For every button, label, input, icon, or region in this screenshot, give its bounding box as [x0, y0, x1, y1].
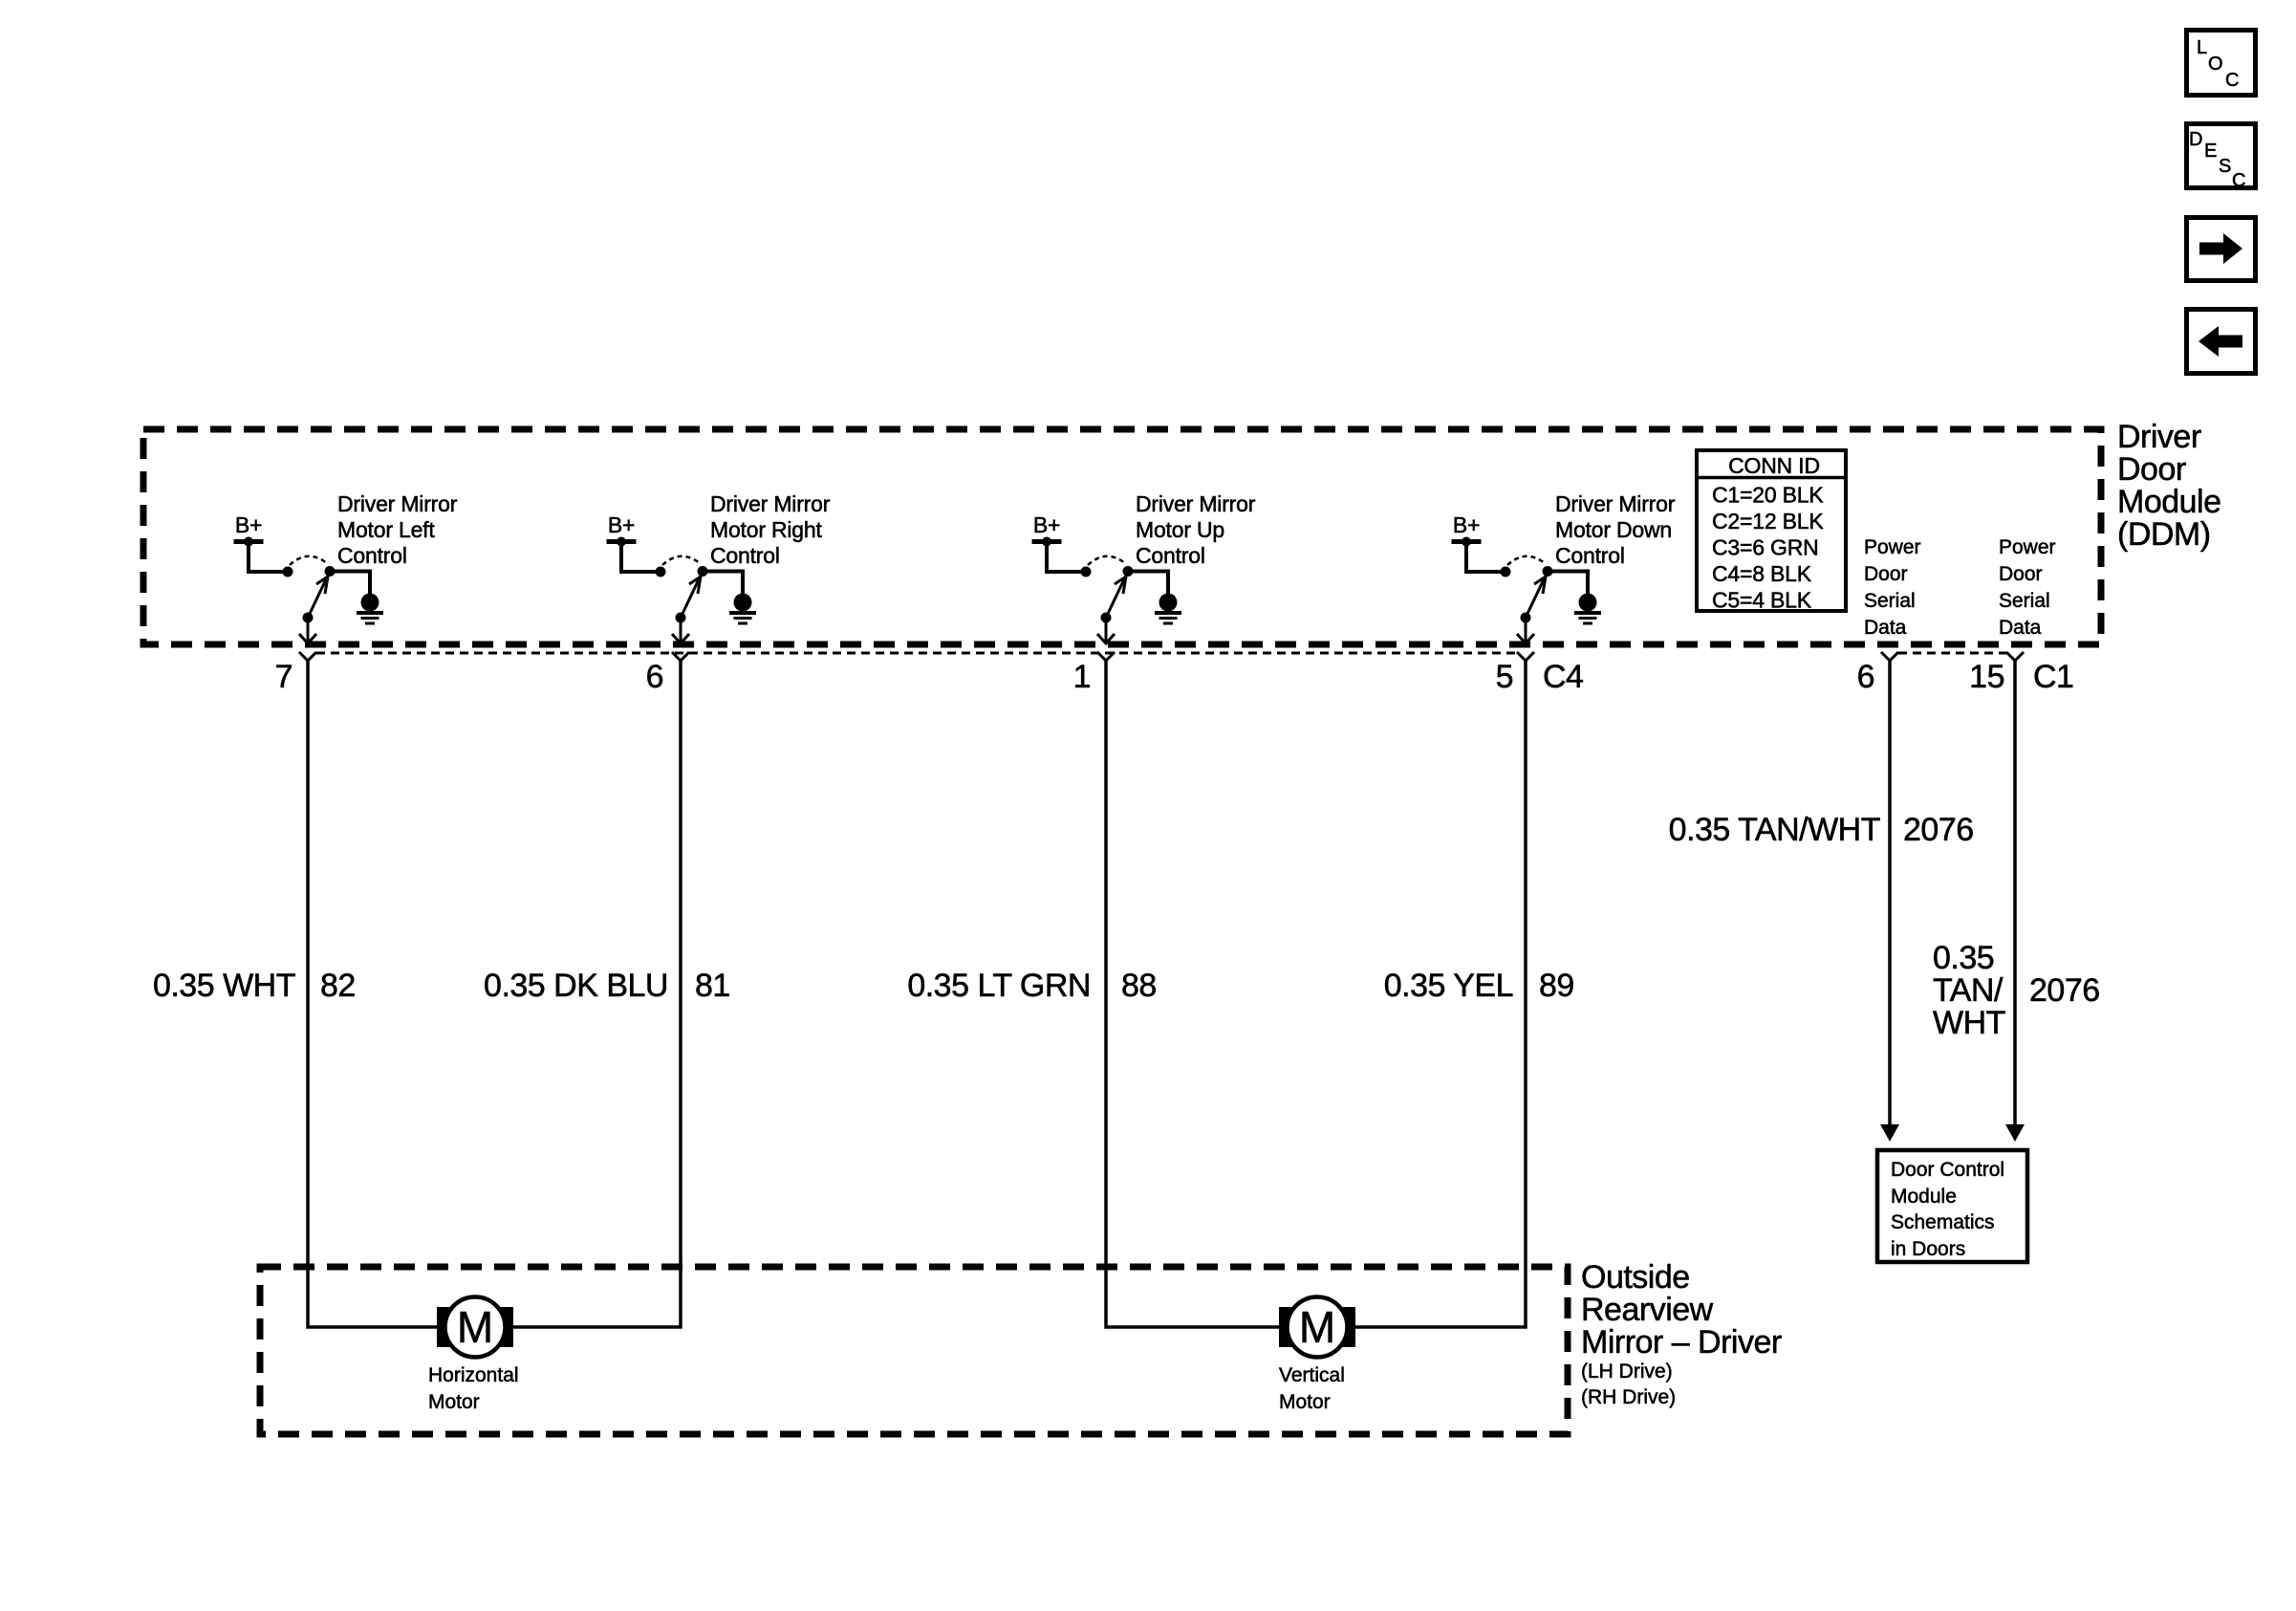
- svg-text:7: 7: [275, 659, 292, 695]
- svg-text:81: 81: [695, 968, 730, 1004]
- svg-text:B+: B+: [608, 512, 635, 537]
- svg-text:Horizontal: Horizontal: [428, 1364, 519, 1386]
- svg-text:89: 89: [1539, 968, 1574, 1004]
- svg-text:Power: Power: [1999, 536, 2056, 558]
- svg-text:B+: B+: [1453, 512, 1480, 537]
- svg-text:Data: Data: [1999, 617, 2042, 639]
- svg-text:5: 5: [1496, 659, 1513, 695]
- svg-text:C: C: [2225, 70, 2239, 91]
- svg-text:Driver: Driver: [2117, 419, 2201, 455]
- svg-text:0.35 YEL: 0.35 YEL: [1384, 968, 1513, 1004]
- svg-text:M: M: [1299, 1302, 1335, 1352]
- svg-text:C: C: [2232, 170, 2245, 191]
- svg-text:Control: Control: [337, 543, 407, 568]
- svg-text:6: 6: [1857, 659, 1874, 695]
- svg-text:Serial: Serial: [1999, 590, 2050, 612]
- svg-text:Motor Right: Motor Right: [710, 517, 822, 542]
- svg-text:C2=12 BLK: C2=12 BLK: [1712, 509, 1824, 533]
- svg-text:Serial: Serial: [1864, 590, 1916, 612]
- svg-text:Driver Mirror: Driver Mirror: [1136, 491, 1256, 516]
- svg-text:Control: Control: [710, 543, 780, 568]
- svg-text:Motor Left: Motor Left: [337, 517, 435, 542]
- svg-text:2076: 2076: [1903, 812, 1974, 848]
- svg-text:(LH Drive): (LH Drive): [1581, 1361, 1673, 1382]
- svg-text:2076: 2076: [2029, 972, 2100, 1009]
- svg-text:O: O: [2208, 54, 2223, 75]
- svg-text:0.35 TAN/WHT: 0.35 TAN/WHT: [1669, 812, 1880, 848]
- svg-text:C5=4 BLK: C5=4 BLK: [1712, 588, 1812, 613]
- svg-text:82: 82: [320, 968, 356, 1004]
- svg-text:B+: B+: [235, 512, 262, 537]
- svg-text:C4: C4: [1543, 659, 1583, 695]
- svg-text:Power: Power: [1864, 536, 1921, 558]
- svg-text:Rearview: Rearview: [1581, 1292, 1714, 1328]
- svg-text:15: 15: [1969, 659, 2004, 695]
- svg-text:CONN ID: CONN ID: [1728, 453, 1820, 478]
- svg-text:Driver Mirror: Driver Mirror: [710, 491, 831, 516]
- svg-text:(DDM): (DDM): [2117, 516, 2211, 553]
- svg-text:C1=20 BLK: C1=20 BLK: [1712, 483, 1824, 508]
- svg-text:Module: Module: [1891, 1186, 1957, 1208]
- svg-text:Motor: Motor: [428, 1391, 480, 1413]
- svg-text:Door: Door: [2117, 451, 2186, 488]
- svg-text:0.35: 0.35: [1933, 940, 1994, 976]
- svg-text:TAN/: TAN/: [1933, 972, 2004, 1009]
- svg-text:Schematics: Schematics: [1891, 1211, 1995, 1233]
- svg-text:C3=6 GRN: C3=6 GRN: [1712, 535, 1819, 560]
- svg-text:S: S: [2219, 156, 2231, 177]
- svg-text:Data: Data: [1864, 617, 1907, 639]
- svg-text:B+: B+: [1033, 512, 1060, 537]
- svg-text:D: D: [2189, 129, 2202, 150]
- svg-text:L: L: [2197, 37, 2207, 58]
- svg-text:Door: Door: [1999, 563, 2043, 585]
- svg-text:6: 6: [646, 659, 663, 695]
- svg-text:C1: C1: [2033, 659, 2073, 695]
- svg-text:Motor Down: Motor Down: [1555, 517, 1672, 542]
- svg-text:88: 88: [1121, 968, 1157, 1004]
- svg-text:0.35 WHT: 0.35 WHT: [153, 968, 295, 1004]
- svg-text:in Doors: in Doors: [1891, 1238, 1965, 1260]
- svg-text:Outside: Outside: [1581, 1259, 1690, 1295]
- svg-text:Vertical: Vertical: [1279, 1364, 1345, 1386]
- svg-text:Door Control: Door Control: [1891, 1159, 2004, 1181]
- svg-text:Mirror – Driver: Mirror – Driver: [1581, 1324, 1782, 1361]
- svg-text:Driver Mirror: Driver Mirror: [1555, 491, 1676, 516]
- svg-text:E: E: [2204, 141, 2217, 162]
- svg-text:C4=8 BLK: C4=8 BLK: [1712, 561, 1812, 586]
- svg-text:1: 1: [1073, 659, 1091, 695]
- svg-text:(RH Drive): (RH Drive): [1581, 1386, 1676, 1408]
- svg-text:Door: Door: [1864, 563, 1908, 585]
- svg-text:M: M: [457, 1302, 493, 1352]
- svg-text:0.35 DK BLU: 0.35 DK BLU: [484, 968, 668, 1004]
- svg-text:0.35 LT GRN: 0.35 LT GRN: [907, 968, 1091, 1004]
- svg-text:Motor Up: Motor Up: [1136, 517, 1224, 542]
- svg-text:Control: Control: [1136, 543, 1205, 568]
- svg-text:Module: Module: [2117, 484, 2221, 520]
- svg-text:WHT: WHT: [1933, 1005, 2005, 1041]
- svg-text:Control: Control: [1555, 543, 1625, 568]
- svg-text:Motor: Motor: [1279, 1391, 1331, 1413]
- svg-text:Driver Mirror: Driver Mirror: [337, 491, 458, 516]
